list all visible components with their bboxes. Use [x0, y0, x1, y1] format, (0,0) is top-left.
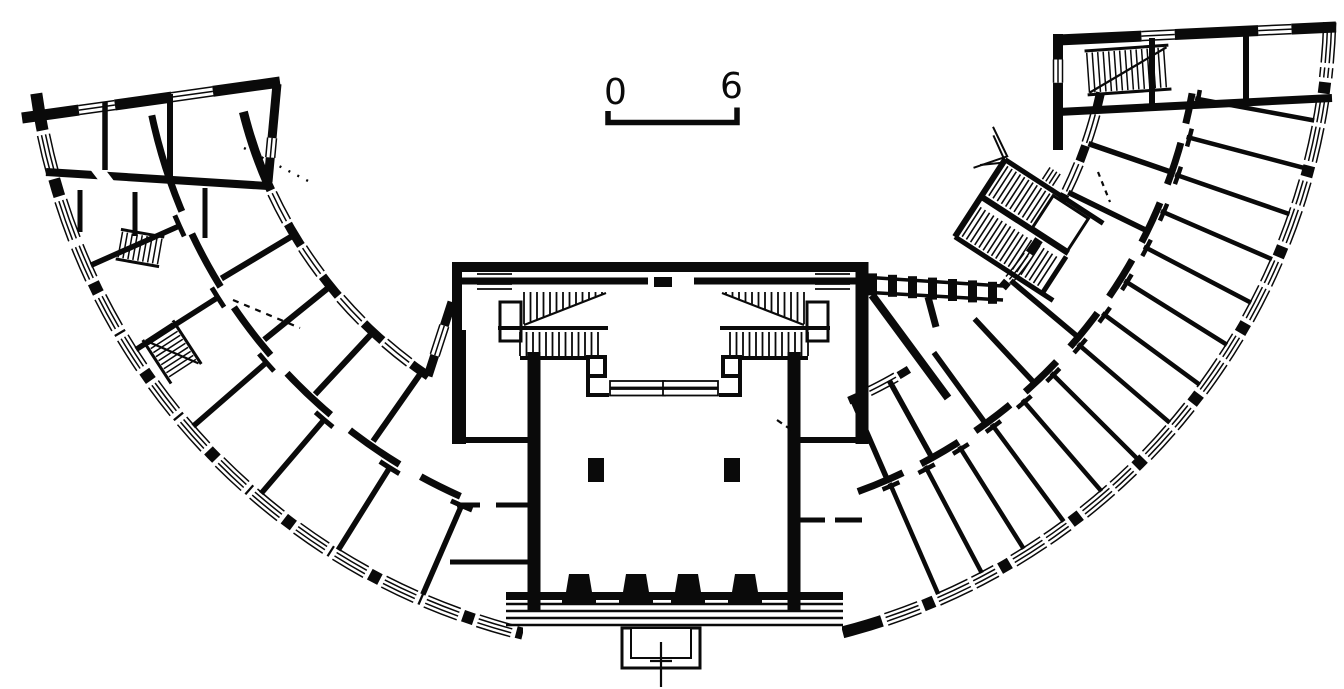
floor-plan-drawing: 0 6 — [0, 0, 1344, 689]
scale-end-label: 6 — [720, 66, 743, 107]
floor-plan-page: 0 6 — [0, 0, 1344, 689]
left-end-pavilion — [22, 82, 280, 267]
scale-start-label: 0 — [604, 72, 627, 113]
scale-bar: 0 6 — [604, 66, 743, 123]
scale-bar-rule — [608, 108, 737, 123]
